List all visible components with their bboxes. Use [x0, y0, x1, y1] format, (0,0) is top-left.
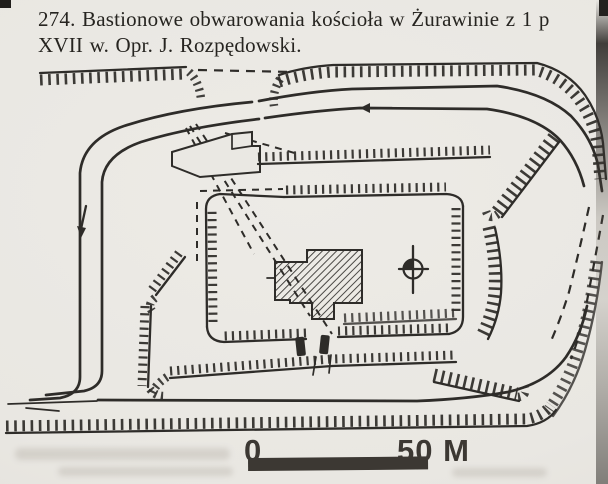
north-wall-line [258, 157, 490, 164]
bastion-west-edge-lower [148, 306, 151, 387]
inner-wall-parallel-hatch [344, 313, 456, 318]
gate-building [172, 132, 260, 177]
inner-wall-parallel-line [344, 319, 456, 324]
scale-bar-rule [248, 456, 428, 471]
scan-artifact-top-left [0, 0, 11, 8]
rampart-end-fan [274, 79, 280, 106]
inner-wall-south-east-line [338, 334, 449, 337]
road-north-outer [259, 86, 602, 191]
outer-ramparts [6, 63, 606, 433]
scale-bar: 0 50 M [244, 433, 470, 471]
rampart-south [6, 405, 551, 426]
dashed-top-gap [198, 70, 294, 72]
rampart-end-fan [189, 72, 201, 99]
road-arrow-west-head [77, 226, 86, 238]
page-gutter-shadow [596, 0, 608, 484]
inner-wall-west-line [206, 194, 284, 327]
church-plan [275, 250, 362, 319]
road-arrow-west [81, 206, 86, 229]
road-south-connector [8, 401, 97, 404]
road-stub [26, 408, 59, 411]
inner-wall-west-hatch [212, 211, 213, 322]
inner-wall-north-line [284, 194, 463, 206]
bastion-west-scarp-lower [142, 306, 145, 386]
inner-wall-north-hatch [286, 187, 446, 190]
gate-building-outline [172, 132, 260, 177]
inner-wall-south-east-hatch [338, 328, 448, 331]
road-north-inner [265, 108, 584, 186]
inner-wall-east-line [449, 206, 463, 334]
caption-line-1: 274. Bastionowe obwarowania kościoła w Ż… [38, 6, 608, 32]
road-south [98, 306, 587, 401]
caption-line-2: XVII w. Opr. J. Rozpędowski. [38, 32, 608, 58]
book-page: 0 50 M 274. Bastionowe obwarowania kości… [0, 0, 608, 484]
gate-pillar [319, 335, 330, 355]
north-indicator-quadrant [404, 260, 414, 270]
fortification-plan-drawing: 0 50 M [0, 0, 608, 484]
inner-wall-south-west-hatch [224, 333, 306, 336]
bastion-fan [152, 377, 167, 393]
bastion-fan [486, 211, 498, 217]
scan-artifact-top-right [599, 0, 608, 16]
dashed-inner-wall-north [200, 189, 283, 191]
figure-caption: 274. Bastionowe obwarowania kościoła w Ż… [38, 6, 608, 58]
ring-road [8, 86, 602, 411]
church [267, 250, 362, 319]
north-indicator [399, 246, 428, 293]
bastion-northeast-edge [502, 142, 559, 217]
rampart-north-west [40, 74, 186, 80]
road-arrow-north-head [360, 103, 370, 113]
bastion-east-scarp [482, 227, 495, 336]
bastion-northeast-scarp [497, 137, 554, 212]
